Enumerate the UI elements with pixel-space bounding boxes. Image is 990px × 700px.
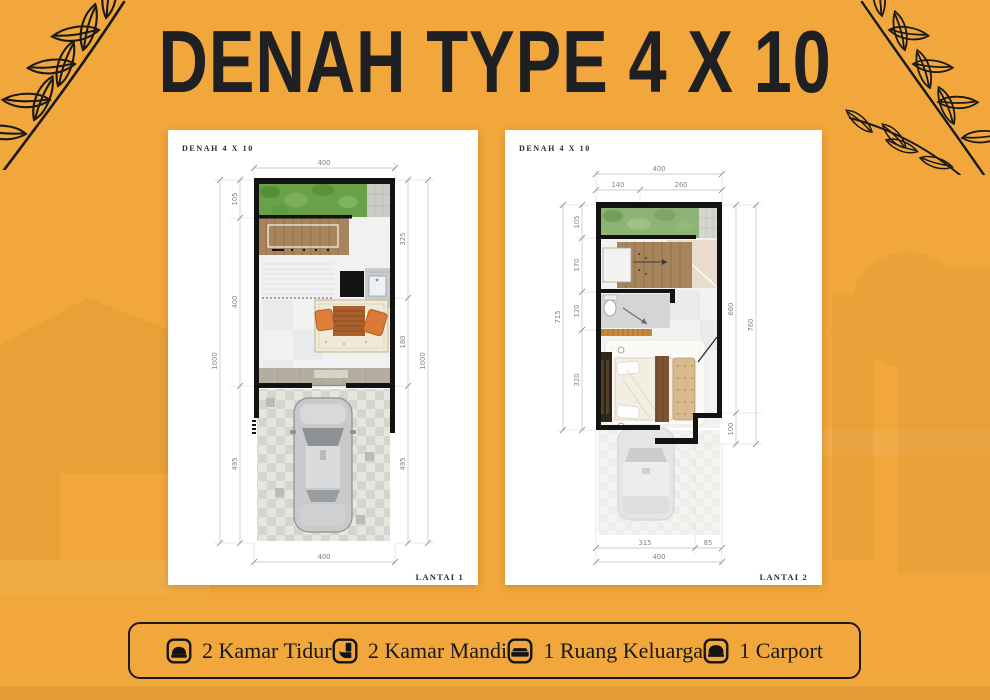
legend-item-kamar-mandi: 2 Kamar Mandi <box>332 638 507 664</box>
dim-left-105: 105 <box>231 193 239 206</box>
page-title: DENAH TYPE 4 X 10 <box>109 18 881 106</box>
car-top-view <box>290 398 356 532</box>
dim-left-715: 715 <box>554 311 562 324</box>
carport-faded <box>598 428 720 535</box>
legend-bar: 2 Kamar Tidur 2 Kamar Mandi 1 Ruang Kelu… <box>128 622 861 679</box>
dim-top: 400 <box>318 159 331 167</box>
dim-top-400: 400 <box>653 165 666 173</box>
dim-right-660: 660 <box>727 303 735 316</box>
dim-top-140: 140 <box>612 181 625 189</box>
legend-item-carport: 1 Carport <box>703 638 823 664</box>
car-icon <box>703 638 729 664</box>
legend-label: 1 Carport <box>739 638 823 664</box>
shelf-strip <box>600 329 652 336</box>
bed-icon <box>166 638 192 664</box>
dining-area <box>315 300 388 352</box>
dim-right-760: 760 <box>747 319 755 332</box>
floor-label-lantai-1: LANTAI 1 <box>416 572 464 582</box>
dim-left-1000: 1000 <box>211 352 219 369</box>
plan-title-lantai-2: DENAH 4 X 10 <box>519 144 591 153</box>
garden <box>257 183 367 217</box>
bed <box>615 356 673 422</box>
dim-left-120: 120 <box>573 305 581 318</box>
stairs <box>603 240 718 288</box>
dim-left-170: 170 <box>573 259 581 272</box>
legend-item-ruang-keluarga: 1 Ruang Keluarga <box>507 638 703 664</box>
dim-left-495: 495 <box>231 458 239 471</box>
dim-right-100: 100 <box>727 423 735 436</box>
dim-right-1000: 1000 <box>419 352 427 369</box>
floor-label-lantai-2: LANTAI 2 <box>760 572 808 582</box>
dim-top-260: 260 <box>675 181 688 189</box>
kitchen-wall-block <box>340 271 364 297</box>
dim-right-180: 180 <box>399 336 407 349</box>
dim-bottom-85: 85 <box>704 539 713 547</box>
dim-left-105: 105 <box>573 216 581 229</box>
garden-tile-corner <box>699 208 718 238</box>
stairs <box>257 218 349 255</box>
toilet-icon <box>332 638 358 664</box>
floorplan-card-lantai-2: DENAH 4 X 10 <box>505 130 822 585</box>
dim-right-325: 325 <box>399 233 407 246</box>
sofa-icon <box>507 638 533 664</box>
bathroom <box>600 294 670 328</box>
dim-bottom-400: 400 <box>653 553 666 561</box>
poster: DENAH TYPE 4 X 10 DENAH 4 X 10 <box>0 0 990 700</box>
dim-left-400: 400 <box>231 296 239 309</box>
dim-left-320: 320 <box>573 374 581 387</box>
dim-bottom-315: 315 <box>639 539 652 547</box>
garden-tile-corner <box>367 183 390 217</box>
legend-label: 2 Kamar Tidur <box>202 638 332 664</box>
legend-label: 1 Ruang Keluarga <box>543 638 703 664</box>
headboard-tufted <box>673 358 695 420</box>
legend-label: 2 Kamar Mandi <box>368 638 507 664</box>
dim-bottom: 400 <box>318 553 331 561</box>
floorplan-card-lantai-1: DENAH 4 X 10 <box>168 130 478 585</box>
plan-title-lantai-1: DENAH 4 X 10 <box>182 144 254 153</box>
dim-right-495: 495 <box>399 458 407 471</box>
legend-item-kamar-tidur: 2 Kamar Tidur <box>166 638 332 664</box>
roof-garden <box>599 208 699 238</box>
